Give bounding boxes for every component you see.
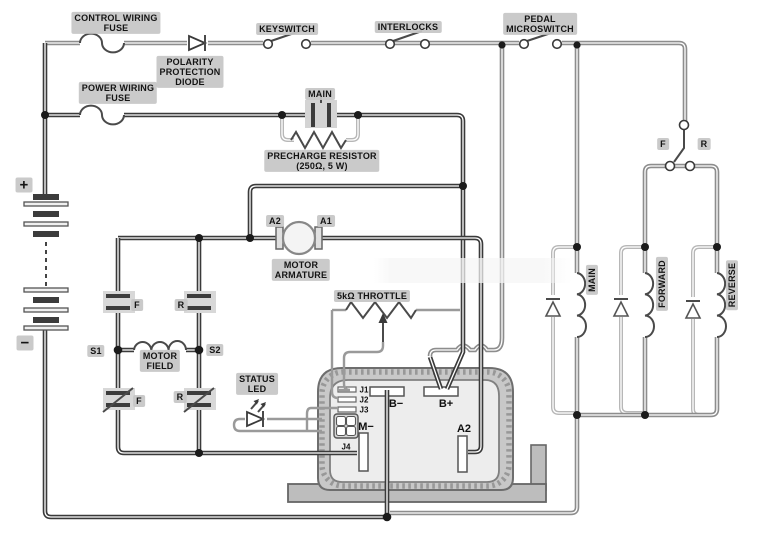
- terminal-m-minus: [359, 433, 368, 471]
- forward-coil-diode-wire: [621, 247, 643, 413]
- label-control-fuse: CONTROL WIRING FUSE: [71, 12, 160, 34]
- pedal-contact: [520, 40, 529, 49]
- label-coil-reverse: REVERSE: [726, 260, 738, 310]
- label-throttle: 5kΩ THROTTLE: [334, 290, 410, 302]
- r-contact-top: [187, 306, 211, 310]
- forward-coil-symbol: [645, 273, 654, 337]
- selector-frame: [645, 166, 717, 247]
- selector-r-contact: [686, 162, 695, 171]
- label-power-fuse: POWER WIRING FUSE: [79, 82, 157, 104]
- label-armature-a1: A1: [317, 215, 335, 227]
- label-coil-main: MAIN: [586, 265, 598, 295]
- label-selector-f: F: [657, 138, 669, 150]
- reverse-coil-wire: [711, 247, 717, 415]
- motor-armature-symbol: [283, 222, 315, 254]
- label-contact-f-bottom: F: [133, 395, 145, 407]
- label-battery-minus: −: [17, 336, 34, 351]
- label-s2: S2: [206, 344, 223, 356]
- wiring-diagram: CONTROL WIRING FUSE POWER WIRING FUSE PO…: [0, 0, 760, 536]
- battery-symbol: [24, 194, 68, 330]
- label-motor-armature: MOTOR ARMATURE: [272, 259, 330, 281]
- r-contact-top: [187, 294, 211, 298]
- label-polarity-diode: POLARITY PROTECTION DIODE: [156, 56, 223, 88]
- main-coil-diode: [546, 302, 560, 316]
- label-coil-forward: FORWARD: [656, 257, 668, 311]
- reverse-coil-diode: [686, 304, 700, 318]
- interlocks-contact: [386, 40, 395, 49]
- selector-f-contact: [666, 162, 675, 171]
- label-terminal-b-minus: B−: [389, 398, 403, 410]
- throttle-resistor-symbol: [346, 302, 416, 318]
- label-selector-r: R: [698, 138, 711, 150]
- label-pin-j1: J1: [360, 386, 369, 395]
- reverse-coil-symbol: [717, 273, 726, 337]
- label-status-led: STATUS LED: [236, 373, 278, 395]
- label-contact-r-bottom: R: [174, 391, 187, 403]
- reverse-coil-diode-wire: [693, 247, 715, 415]
- main-contactor-chip: [305, 100, 337, 128]
- terminal-a2: [458, 436, 467, 472]
- forward-coil-diode: [614, 302, 628, 316]
- interlocks-contact: [421, 40, 430, 49]
- main-contactor-tip: [327, 103, 331, 127]
- label-keyswitch: KEYSWITCH: [256, 23, 318, 35]
- main-coil-symbol: [577, 273, 586, 337]
- label-contact-f-top: F: [131, 299, 143, 311]
- status-led-symbol: [247, 412, 263, 426]
- label-contact-r-top: R: [175, 299, 188, 311]
- connector-j4: [334, 414, 358, 438]
- label-precharge-resistor: PRECHARGE RESISTOR (250Ω, 5 W): [264, 150, 379, 172]
- precharge-branch-wire: [346, 117, 358, 140]
- label-terminal-b-plus: B+: [439, 398, 453, 410]
- precharge-resistor-symbol: [291, 132, 346, 148]
- label-interlocks: INTERLOCKS: [375, 21, 442, 33]
- f-contact-top: [106, 294, 130, 298]
- control-rail: [562, 43, 685, 121]
- label-terminal-m-minus: M−: [358, 421, 374, 433]
- label-terminal-a2: A2: [457, 423, 471, 435]
- label-pin-j2: J2: [360, 396, 369, 405]
- selector-common-contact: [680, 121, 689, 130]
- label-s1: S1: [87, 345, 104, 357]
- label-battery-plus: +: [16, 178, 33, 193]
- f-contact-top: [106, 306, 130, 310]
- controller-housing: [288, 368, 546, 502]
- label-pin-j4: J4: [342, 443, 351, 452]
- main-contactor-tip: [311, 103, 315, 127]
- control-fuse-symbol: [80, 34, 124, 53]
- pin-j3: [338, 407, 356, 412]
- keyswitch-contact: [302, 40, 311, 49]
- label-motor-field: MOTOR FIELD: [140, 350, 180, 372]
- pedal-contact: [553, 40, 562, 49]
- polarity-diode-symbol: [189, 36, 205, 50]
- watermark-band: [374, 258, 572, 283]
- label-pin-j3: J3: [360, 406, 369, 415]
- label-pedal-microswitch: PEDAL MICROSWITCH: [503, 13, 577, 35]
- label-armature-a2: A2: [266, 215, 284, 227]
- power-fuse-symbol: [80, 106, 124, 125]
- pin-j2: [338, 397, 356, 402]
- keyswitch-contact: [264, 40, 273, 49]
- motor-field-symbol: [134, 341, 186, 350]
- label-main-contactor: MAIN: [305, 88, 335, 100]
- selector-blade: [674, 129, 684, 162]
